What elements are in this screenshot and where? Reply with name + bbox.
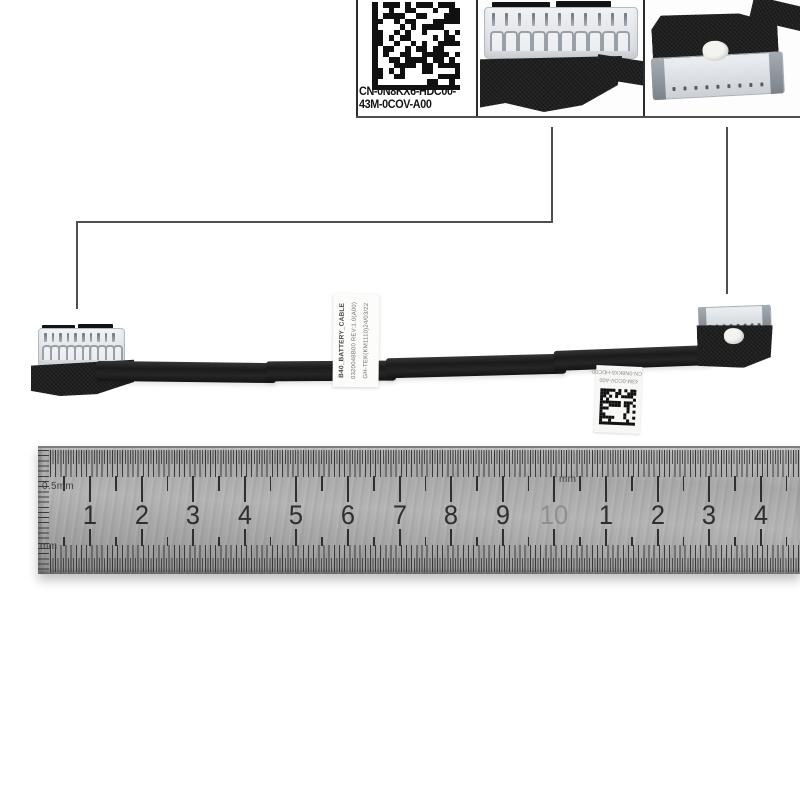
connector-pin bbox=[558, 13, 561, 26]
connector-pin bbox=[598, 13, 601, 26]
ruler-scale-label-bottom: mm bbox=[40, 541, 57, 552]
ruler-cm-tick-bottom bbox=[605, 529, 607, 546]
connector-pin bbox=[505, 13, 508, 26]
ruler-cm-tick-bottom bbox=[708, 529, 710, 546]
connector-slot bbox=[616, 31, 630, 51]
ruler-halfcm-tick-bottom bbox=[425, 537, 427, 546]
battery-cable-segment bbox=[386, 354, 566, 379]
barcode-cell bbox=[455, 30, 461, 36]
ruler-cm-tick-bottom bbox=[347, 529, 349, 546]
barcode-cell bbox=[455, 74, 461, 80]
connector-pin bbox=[82, 333, 85, 342]
part-number-line2: 43M-0COV-A00 bbox=[359, 97, 432, 111]
barcode-cell bbox=[394, 41, 400, 47]
ruler-left-edge-ticks bbox=[38, 450, 49, 572]
connector-pin bbox=[518, 13, 521, 26]
connector-pin-dot bbox=[705, 85, 708, 89]
leader-line-right-vertical bbox=[726, 127, 728, 294]
barcode-cell bbox=[632, 411, 635, 414]
connector-slot bbox=[574, 31, 588, 51]
barcode-cell bbox=[394, 2, 400, 8]
connector-pin-dot bbox=[672, 87, 675, 91]
connector-pin bbox=[624, 13, 627, 26]
ruler-cm-tick-top bbox=[399, 476, 401, 502]
ruler-halfcm-tick-top bbox=[579, 476, 581, 491]
connector-slot bbox=[588, 31, 602, 51]
ruler-halfcm-tick-bottom bbox=[631, 537, 633, 546]
ruler-cm-tick-top bbox=[295, 476, 297, 502]
barcode-cell bbox=[618, 404, 621, 407]
ruler-halfcm-tick-bottom bbox=[321, 537, 323, 546]
barcode-cell bbox=[400, 74, 406, 80]
barcode-cell bbox=[606, 406, 609, 409]
flag-label-line2: 0320048B00 REV:1.0(A00) bbox=[349, 294, 361, 386]
ruler-halfcm-tick-top bbox=[321, 476, 323, 491]
connector-slot bbox=[602, 31, 616, 51]
cable-left-connector bbox=[31, 322, 135, 398]
ruler-cm-tick-top bbox=[553, 476, 555, 502]
cable-right-connector bbox=[696, 301, 776, 374]
ruler-halfcm-tick-top bbox=[218, 476, 220, 491]
connector-cap-left bbox=[651, 58, 666, 101]
ruler-halfcm-tick-bottom bbox=[786, 537, 788, 546]
connector-pin bbox=[611, 13, 614, 26]
connector-pin-dot bbox=[727, 84, 730, 88]
connector-pin bbox=[492, 13, 495, 26]
part-number-label-inset: CN-0N8KX6-HDC00- 43M-0COV-A00 bbox=[358, 0, 476, 116]
flag-label-line1: B40_BATTERY_CABLE bbox=[336, 294, 348, 386]
connector-pin bbox=[97, 333, 100, 342]
barcode-cell bbox=[626, 410, 629, 413]
ruler-halfcm-tick-top bbox=[270, 476, 272, 491]
part-number-line1: CN-0N8KX6-HDC00- bbox=[359, 84, 456, 98]
right-connector-group bbox=[648, 0, 800, 116]
ruler-cm-tick-top bbox=[657, 476, 659, 502]
product-photo: CN-0N8KX6-HDC00- 43M-0COV-A00 bbox=[0, 0, 800, 800]
barcode-cell bbox=[427, 68, 433, 74]
barcode-cell bbox=[378, 74, 384, 80]
connector-pin bbox=[67, 333, 70, 342]
connector-pin bbox=[105, 333, 108, 342]
ruler-halfcm-tick-top bbox=[425, 476, 427, 491]
connector-slot bbox=[532, 31, 546, 51]
barcode-cell bbox=[609, 395, 612, 398]
ruler-cm-tick-bottom bbox=[192, 529, 194, 546]
barcode-cell bbox=[433, 8, 439, 14]
ruler-number: 3 bbox=[169, 500, 218, 531]
connector-pin bbox=[545, 13, 548, 26]
connector-slot bbox=[113, 345, 123, 360]
ruler-cm-tick-top bbox=[141, 476, 143, 502]
barcode-cell bbox=[455, 19, 461, 25]
barcode-cell bbox=[411, 24, 417, 30]
ruler-halfcm-tick-top bbox=[115, 476, 117, 491]
ruler-cm-tick-bottom bbox=[141, 529, 143, 546]
ruler-halfcm-tick-bottom bbox=[528, 537, 530, 546]
ruler-cm-tick-bottom bbox=[244, 529, 246, 546]
connector-pin bbox=[571, 13, 574, 26]
ruler-cm-tick-top bbox=[347, 476, 349, 502]
ruler-cm-tick-top bbox=[450, 476, 452, 502]
barcode-cell bbox=[455, 52, 461, 58]
ruler-cm-tick-top bbox=[502, 476, 504, 502]
hang-tag-line2: 43M-0COV-A00 bbox=[596, 376, 642, 384]
ruler-number: 1 bbox=[66, 500, 115, 531]
ruler-number: 8 bbox=[427, 500, 476, 531]
datamatrix-barcode bbox=[372, 2, 460, 90]
connector-pin-dot bbox=[683, 86, 686, 90]
barcode-cell bbox=[633, 405, 636, 408]
ruler-cm-tick-top bbox=[760, 476, 762, 502]
right-connector-inset bbox=[645, 0, 800, 116]
connector-pin-dot bbox=[716, 85, 719, 89]
ruler-halfcm-tick-bottom bbox=[579, 537, 581, 546]
connector-slot bbox=[560, 31, 574, 51]
ruler-number: 10 bbox=[530, 500, 579, 531]
ruler-number: 4 bbox=[220, 500, 269, 531]
ruler-halfcm-tick-top bbox=[476, 476, 478, 491]
ruler-cm-tick-top bbox=[244, 476, 246, 502]
ruler-halfcm-tick-top bbox=[373, 476, 375, 491]
ruler-cm-tick-top bbox=[89, 476, 91, 502]
cable-hang-tag: CN-0N8KX6-HDC00- 43M-0COV-A00 bbox=[594, 365, 643, 434]
ruler-cm-tick-top bbox=[708, 476, 710, 502]
connector-slot bbox=[546, 31, 560, 51]
ruler-number: 7 bbox=[375, 500, 424, 531]
barcode-cell bbox=[455, 41, 461, 47]
barcode-cell bbox=[633, 399, 636, 402]
ruler-number: 5 bbox=[272, 500, 321, 531]
ruler: 123456789101234 0.5mm mm mm bbox=[38, 446, 800, 574]
barcode-cell bbox=[633, 393, 636, 396]
ruler-halfcm-tick-top bbox=[167, 476, 169, 491]
connector-pin bbox=[90, 333, 93, 342]
connector-slot bbox=[504, 31, 518, 51]
battery-cable-segment bbox=[96, 361, 276, 383]
connector-slot bbox=[490, 31, 504, 51]
ruler-number: 9 bbox=[478, 500, 527, 531]
leader-line-horizontal bbox=[76, 221, 553, 223]
ruler-cm-tick-bottom bbox=[502, 529, 504, 546]
ruler-halfcm-tick-top bbox=[734, 476, 736, 491]
ruler-halfcm-tick-top bbox=[683, 476, 685, 491]
barcode-cell bbox=[422, 13, 428, 19]
barcode-cell bbox=[378, 19, 384, 25]
connector-pin-dot bbox=[749, 83, 752, 87]
barcode-cell bbox=[632, 423, 635, 426]
ruler-halfcm-tick-bottom bbox=[63, 537, 65, 546]
barcode-cell bbox=[632, 417, 635, 420]
ruler-cm-tick-bottom bbox=[760, 529, 762, 546]
leader-line-left-vertical bbox=[76, 222, 78, 309]
hang-tag-line1: CN-0N8KX6-HDC00- bbox=[596, 368, 642, 376]
ruler-halfcm-tick-top bbox=[528, 476, 530, 491]
flag-label-line3: GH-TEK(KM1110)24/03/22 bbox=[361, 295, 373, 387]
ruler-cm-tick-bottom bbox=[89, 529, 91, 546]
leader-line-mid-vertical bbox=[551, 127, 553, 222]
ruler-number: 3 bbox=[685, 500, 734, 531]
ruler-cm-tick-bottom bbox=[295, 529, 297, 546]
connector-pin-dot bbox=[738, 83, 741, 87]
barcode-cell bbox=[611, 416, 614, 419]
inset-border-bottom bbox=[356, 116, 800, 118]
connector-pin bbox=[532, 13, 535, 26]
ruler-number: 2 bbox=[117, 500, 166, 531]
ruler-halfcm-tick-bottom bbox=[683, 537, 685, 546]
ruler-number: 1 bbox=[582, 500, 631, 531]
barcode-cell bbox=[615, 395, 618, 398]
ruler-halfcm-tick-bottom bbox=[218, 537, 220, 546]
ruler-halfcm-tick-top bbox=[631, 476, 633, 491]
connector-pin bbox=[74, 333, 77, 342]
ruler-cm-tick-bottom bbox=[399, 529, 401, 546]
left-connector-inset bbox=[478, 0, 643, 116]
ruler-cm-tick-top bbox=[605, 476, 607, 502]
ruler-halfcm-tick-bottom bbox=[734, 537, 736, 546]
connector-slot bbox=[518, 31, 532, 51]
ruler-cm-tick-bottom bbox=[450, 529, 452, 546]
connector-pin bbox=[52, 333, 55, 342]
ruler-halfcm-tick-top bbox=[786, 476, 788, 491]
barcode-cell bbox=[411, 63, 417, 69]
ruler-halfcm-tick-bottom bbox=[373, 537, 375, 546]
ruler-top-half-ticks bbox=[50, 450, 800, 464]
ruler-halfcm-tick-bottom bbox=[167, 537, 169, 546]
connector-cap-right bbox=[769, 51, 784, 94]
ruler-number: 4 bbox=[736, 500, 785, 531]
ruler-bottom-half-ticks bbox=[50, 558, 800, 572]
ruler-halfcm-tick-bottom bbox=[270, 537, 272, 546]
hang-tag-qr-code bbox=[599, 388, 637, 426]
ruler-number: 2 bbox=[633, 500, 682, 531]
ruler-scale-label-top: 0.5mm bbox=[42, 481, 74, 492]
ruler-halfcm-tick-bottom bbox=[476, 537, 478, 546]
ruler-halfcm-tick-bottom bbox=[115, 537, 117, 546]
ruler-scale-label-mid: mm bbox=[559, 474, 576, 485]
ruler-cm-tick-bottom bbox=[553, 529, 555, 546]
connector-pin-dot bbox=[694, 86, 697, 90]
barcode-cell bbox=[389, 46, 395, 52]
connector-pin-dot bbox=[760, 82, 763, 86]
ruler-cm-tick-top bbox=[192, 476, 194, 502]
ruler-cm-tick-bottom bbox=[657, 529, 659, 546]
cable-flag-label: B40_BATTERY_CABLE 0320048B00 REV:1.0(A00… bbox=[333, 294, 380, 387]
connector-pin bbox=[584, 13, 587, 26]
connector-pin bbox=[44, 333, 47, 342]
connector-pin bbox=[112, 333, 115, 342]
ruler-number: 6 bbox=[324, 500, 373, 531]
connector-pin bbox=[59, 333, 62, 342]
barcode-cell bbox=[422, 30, 428, 36]
